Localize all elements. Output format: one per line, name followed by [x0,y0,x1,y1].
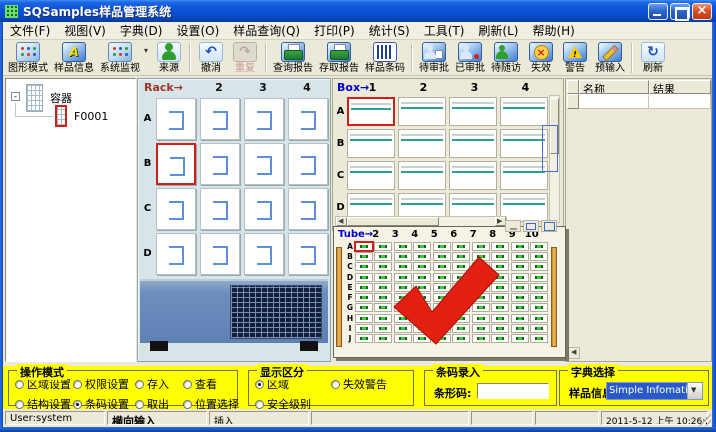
tube-cell-G8[interactable] [491,303,509,312]
rack-cell-D4[interactable] [288,233,328,275]
tube-cell-E2[interactable] [374,283,392,292]
operation-mode-group: 操作模式 区域设置权限设置存入查看结构设置条码设置取出位置选择 [8,370,238,406]
child-maximize-button[interactable] [541,220,557,232]
rack-cell-A4[interactable] [288,98,328,140]
tube-cell-H7[interactable] [472,314,490,323]
tube-cell-E3[interactable] [394,283,412,292]
tube-cell-H10[interactable] [530,314,548,323]
display-mode-option-2[interactable]: 失效警告 [331,376,415,392]
title-bar: SQSamples样品管理系统 [0,0,716,22]
tube-cell-A5[interactable] [433,242,451,251]
toolbar-label: 系统监视 [100,63,140,74]
result-cell-name[interactable] [579,94,649,109]
toolbar-label: 已审批 [455,63,485,74]
tube-cell-A4[interactable] [413,242,431,251]
tube-cell-B1[interactable] [355,252,373,261]
radio-icon [73,380,82,389]
tube-cell-G9[interactable] [511,303,529,312]
restore-icon [524,221,538,231]
tube-cell-G7[interactable] [472,303,490,312]
box-col-header: 3 [449,81,500,94]
tube-cell-J8[interactable] [491,334,509,343]
tube-cell-C3[interactable] [394,262,412,271]
status-bar: User:system 横向输入 插入 2011-5-12 上午 10:26:2… [3,409,712,427]
toolbar-label: 图形模式 [8,63,48,74]
close-button[interactable] [692,3,712,20]
menu-bar: 文件(F)视图(V)字典(D)设置(O)样品查询(Q)打印(P)统计(S)工具(… [3,22,712,40]
system-monitor-button[interactable]: 系统监视 [97,41,143,74]
tube-cell-G6[interactable] [452,303,470,312]
rack-row-label: D [143,248,151,259]
scrollbar-thumb[interactable] [347,217,439,226]
rack-cell-A2[interactable] [200,98,240,140]
tube-cell-C6[interactable] [452,262,470,271]
box-col-header: 1 [347,81,398,94]
doc-followup-icon [494,42,518,62]
selection-indicator-rect [542,125,558,172]
box-row-label: A [337,106,345,117]
toolbar-label: 预输入 [595,63,625,74]
box-cell-A2[interactable] [398,97,446,126]
results-panel: 名称 结果 [565,78,712,362]
tube-cell-J4[interactable] [413,334,431,343]
box-cell-C4[interactable] [500,161,548,190]
rack-col-header: 2 [197,81,241,94]
tube-cell-B8[interactable] [491,252,509,261]
rack-col-header: 3 [241,81,285,94]
rack-cell-C4[interactable] [288,188,328,230]
radio-icon [15,380,24,389]
radio-icon [183,380,192,389]
chevron-down-icon[interactable] [687,383,702,399]
tube-cell-A7[interactable] [472,242,490,251]
resize-grip[interactable] [699,414,711,426]
tube-cell-F5[interactable] [433,293,451,302]
doc-approved-icon [458,42,482,62]
tube-cell-B4[interactable] [413,252,431,261]
box-cell-D4[interactable] [500,193,548,222]
tree-node-container[interactable]: 容器 [50,90,72,106]
box-cell-A3[interactable] [449,97,497,126]
tube-row-label: A [347,242,353,251]
column-header-name[interactable]: 名称 [579,80,649,94]
tray-handle-left [336,247,342,347]
tube-cell-F7[interactable] [472,293,490,302]
box-cell-C2[interactable] [398,161,446,190]
tube-cell-A8[interactable] [491,242,509,251]
tube-cell-D8[interactable] [491,273,509,282]
tube-cell-D2[interactable] [374,273,392,282]
rack-cell-D3[interactable] [244,233,284,275]
dictionary-group: 字典选择 样品信息 Simple Infomation [559,370,709,406]
tube-col-header: 3 [386,229,406,240]
tube-cell-I5[interactable] [433,324,451,333]
tube-cell-E10[interactable] [530,283,548,292]
undo-arrow-icon [199,42,223,62]
tube-cell-I10[interactable] [530,324,548,333]
tube-cell-D3[interactable] [394,273,412,282]
tube-cell-C7[interactable] [472,262,490,271]
tube-cell-E1[interactable] [355,283,373,292]
row-selector[interactable] [567,94,579,109]
tray-handle-right [551,247,557,347]
tree-connector-line [15,116,53,117]
box-cell-B3[interactable] [449,129,497,158]
tube-cell-E6[interactable] [452,283,470,292]
control-strip: 操作模式 区域设置权限设置存入查看结构设置条码设置取出位置选择 显示区分 区域失… [3,366,712,409]
box-row-label: B [337,138,345,149]
tube-row-label: C [347,262,353,271]
rack-title: Rack→ [144,81,183,94]
menu-item[interactable]: 工具(T) [417,21,472,40]
tube-cell-I2[interactable] [374,324,392,333]
pencil-input-button[interactable]: 预输入 [592,41,628,74]
container-tree-panel: 容器 F0001 [5,78,136,362]
printer-query-button[interactable]: 查询报告 [270,41,316,74]
menu-item[interactable]: 设置(O) [169,21,226,40]
tube-cell-I1[interactable] [355,324,373,333]
radio-icon [15,400,24,409]
radio-icon [255,400,264,409]
box-cell-B1[interactable] [347,129,395,158]
doc-pending-icon [422,42,446,62]
barcode-entry-group: 条码录入 条形码: [424,370,557,406]
rack-cell-C3[interactable] [244,188,284,230]
rack-cell-D1[interactable] [156,233,196,275]
box-col-headers: 1234 [347,81,551,94]
toolbar-label: 重复 [235,63,255,74]
window-border [712,22,716,428]
tube-cell-C8[interactable] [491,262,509,271]
tube-cell-A2[interactable] [374,242,392,251]
toolbar-separator [411,43,413,73]
menu-item[interactable]: 字典(D) [113,21,170,40]
result-cell-result[interactable] [649,94,711,109]
maximize-button[interactable] [670,3,690,20]
tube-cell-A10[interactable] [530,242,548,251]
freezer-vent [230,285,322,339]
rack-col-header: 4 [285,81,329,94]
display-mode-group: 显示区分 区域失效警告安全级别 [248,370,414,406]
tube-cell-F2[interactable] [374,293,392,302]
window-border [0,22,3,428]
warning-triangle-button[interactable]: 警告 [558,41,592,74]
menu-item[interactable]: 统计(S) [362,21,417,40]
refresh-circle-button[interactable]: 刷新 [636,41,670,74]
box-cell-B4[interactable] [500,129,548,158]
tube-cell-B10[interactable] [530,252,548,261]
tube-cell-C5[interactable] [433,262,451,271]
menu-item[interactable]: 文件(F) [3,21,57,40]
tube-cell-J6[interactable] [452,334,470,343]
tube-row-label: D [347,273,353,282]
freezer-foot [150,341,168,351]
rack-cell-A3[interactable] [244,98,284,140]
box-panel: Box→ 1234 ABCD [332,78,564,231]
menu-item[interactable]: 刷新(L) [471,21,525,40]
radio-icon [255,380,264,389]
toolbar-label: 刷新 [643,63,663,74]
tube-cell-C9[interactable] [511,262,529,271]
tube-cell-B7[interactable] [472,252,490,261]
tube-cell-H9[interactable] [511,314,529,323]
tube-cell-H4[interactable] [413,314,431,323]
doc-pending-button[interactable]: 待审批 [416,41,452,74]
window-title: SQSamples样品管理系统 [23,3,646,20]
tube-cell-H6[interactable] [452,314,470,323]
tube-col-header: 7 [464,229,484,240]
window-border [0,427,716,432]
refresh-circle-icon [641,42,665,62]
menu-item[interactable]: 帮助(H) [525,21,581,40]
tube-cell-D6[interactable] [452,273,470,282]
tube-row-label: J [349,334,352,343]
tube-cell-F6[interactable] [452,293,470,302]
box-row-label: D [336,202,344,213]
toolbar-label: 警告 [565,63,585,74]
printer-save-icon [327,42,351,62]
sample-info-combobox[interactable]: Simple Infomation [606,382,703,400]
tube-cell-C10[interactable] [530,262,548,271]
barcode-button[interactable]: 样品条码 [362,41,408,74]
tube-cell-F9[interactable] [511,293,529,302]
rack-cell-C1[interactable] [156,188,196,230]
invalid-cross-icon [529,42,553,62]
toolbar-label: 样品条码 [365,63,405,74]
tube-cell-J1[interactable] [355,334,373,343]
status-panel [311,411,469,425]
tree-expander-icon[interactable] [11,92,20,101]
sample-info-icon [62,42,86,62]
group-title: 字典选择 [568,364,618,380]
box-cell-A4[interactable] [500,97,548,126]
tube-col-header: 5 [425,229,445,240]
tube-cell-J2[interactable] [374,334,392,343]
tube-cell-H8[interactable] [491,314,509,323]
box-row-label: C [337,170,344,181]
barcode-input[interactable] [477,383,549,399]
tube-cell-F10[interactable] [530,293,548,302]
tube-cell-B9[interactable] [511,252,529,261]
operation-mode-option-4[interactable]: 查看 [183,376,241,392]
tube-cell-F3[interactable] [394,293,412,302]
toolbar-separator [631,43,633,73]
doc-approved-button[interactable]: 已审批 [452,41,488,74]
radio-label: 存入 [147,376,169,392]
tube-row-label: H [347,314,353,323]
tube-cell-G2[interactable] [374,303,392,312]
printer-save-button[interactable]: 存取报告 [316,41,362,74]
tube-cell-G4[interactable] [413,303,431,312]
tube-cell-D7[interactable] [472,273,490,282]
toolbar-label: 失效 [531,63,551,74]
freezer-rack-icon[interactable] [55,105,67,127]
tube-cell-D5[interactable] [433,273,451,282]
tube-cell-G5[interactable] [433,303,451,312]
operation-mode-option-3[interactable]: 存入 [135,376,183,392]
tube-cell-G1[interactable] [355,303,373,312]
box-cell-A1[interactable] [347,97,395,126]
tube-row-label: B [347,252,353,261]
menu-item[interactable]: 视图(V) [57,21,113,40]
tube-cell-G3[interactable] [394,303,412,312]
app-icon [5,5,18,18]
freezer-body [140,279,328,343]
tube-cell-I6[interactable] [452,324,470,333]
child-restore-button[interactable] [523,220,539,232]
tube-cell-H3[interactable] [394,314,412,323]
tube-cell-D1[interactable] [355,273,373,282]
tube-row-label: E [347,283,352,292]
tube-cell-A1[interactable] [355,242,373,251]
group-title: 条码录入 [433,364,483,380]
group-title: 显示区分 [257,364,307,380]
tube-cell-D10[interactable] [530,273,548,282]
box-cell-B2[interactable] [398,129,446,158]
rack-cell-A1[interactable] [156,98,196,140]
rack-cell-B4[interactable] [288,143,328,185]
box-cell-C3[interactable] [449,161,497,190]
rack-row-label: C [144,203,151,214]
tube-cell-C1[interactable] [355,262,373,271]
tube-cell-F8[interactable] [491,293,509,302]
person-source-button[interactable]: 来源 [152,41,186,74]
redo-icon [233,42,257,62]
grid-mode-icon [16,42,40,62]
tube-cell-J7[interactable] [472,334,490,343]
tube-col-header: 4 [405,229,425,240]
tube-cell-B3[interactable] [394,252,412,261]
tree-node-f0001[interactable]: F0001 [74,110,108,123]
rack-cell-B3[interactable] [244,143,284,185]
status-insert-mode: 插入 [209,411,309,425]
tube-cell-A3[interactable] [394,242,412,251]
tube-row-label: F [347,293,352,302]
rack-grid: ABCD [142,96,329,276]
rack-cell-C2[interactable] [200,188,240,230]
barcode-label: 条形码: [434,385,471,401]
pencil-input-icon [598,42,622,62]
tube-cell-A6[interactable] [452,242,470,251]
sample-info-button[interactable]: 样品信息 [51,41,97,74]
tube-cell-E8[interactable] [491,283,509,292]
radio-icon [331,380,340,389]
tube-cell-I3[interactable] [394,324,412,333]
status-panel [535,411,599,425]
invalid-cross-button[interactable]: 失效 [524,41,558,74]
child-minimize-button[interactable] [505,220,521,232]
minimize-icon [506,221,520,231]
radio-icon [183,400,192,409]
rack-panel: Rack→ 234 ABCD [137,78,331,362]
tube-cell-I8[interactable] [491,324,509,333]
operation-mode-option-2[interactable]: 权限设置 [73,376,135,392]
rack-row-label: B [144,158,152,169]
rack-cell-B2[interactable] [200,143,240,185]
box-grid: ABCD [336,95,549,223]
rack-cell-D2[interactable] [200,233,240,275]
rack-col-headers: 234 [197,81,329,94]
container-rack-icon[interactable] [26,84,43,112]
tube-row-label: I [349,324,352,333]
rack-row-label: A [144,113,152,124]
scroll-left-icon[interactable] [336,217,347,226]
mdi-window-buttons [505,220,557,232]
box-col-header: 4 [500,81,551,94]
minimize-button[interactable] [648,3,668,20]
results-scroll-left-icon[interactable] [568,347,580,359]
tube-cell-J9[interactable] [511,334,529,343]
scrollbar-track[interactable] [439,217,495,226]
box-col-header: 2 [398,81,449,94]
undo-arrow-button[interactable]: 撤消 [194,41,228,74]
tube-cell-H1[interactable] [355,314,373,323]
tube-cell-J10[interactable] [530,334,548,343]
radio-icon [135,380,144,389]
row-selector-header [567,80,579,94]
toolbar-label: 存取报告 [319,63,359,74]
tube-cell-I7[interactable] [472,324,490,333]
tube-cell-I4[interactable] [413,324,431,333]
grid-mode-button[interactable]: 图形模式 [5,41,51,74]
group-title: 操作模式 [17,364,67,380]
tube-cell-B6[interactable] [452,252,470,261]
tube-cell-B5[interactable] [433,252,451,261]
menu-item[interactable]: 样品查询(Q) [226,21,307,40]
status-datetime: 2011-5-12 上午 10:26:26 [601,411,708,425]
tree-connector-line [15,103,16,116]
toolbar-label: 撤消 [201,63,221,74]
tube-cell-H5[interactable] [433,314,451,323]
tube-cell-E4[interactable] [413,283,431,292]
tube-cell-E9[interactable] [511,283,529,292]
tube-col-header: 6 [444,229,464,240]
tube-cell-C4[interactable] [413,262,431,271]
doc-followup-button[interactable]: 待随访 [488,41,524,74]
tube-cell-I9[interactable] [511,324,529,333]
tube-cell-H2[interactable] [374,314,392,323]
toolbar-label: 待随访 [491,63,521,74]
tube-cell-F1[interactable] [355,293,373,302]
box-cell-C1[interactable] [347,161,395,190]
tube-cell-E7[interactable] [472,283,490,292]
system-monitor-dropdown-icon[interactable] [143,44,152,64]
radio-label: 查看 [195,376,217,392]
tube-cell-B2[interactable] [374,252,392,261]
tube-cell-C2[interactable] [374,262,392,271]
tube-col-header: 8 [483,229,503,240]
app-window: SQSamples样品管理系统 文件(F)视图(V)字典(D)设置(O)样品查询… [0,0,716,432]
menu-item[interactable]: 打印(P) [307,21,362,40]
tube-cell-A9[interactable] [511,242,529,251]
toolbar-separator [189,43,191,73]
freezer-foot [300,341,318,351]
radio-icon [135,400,144,409]
tube-cell-D9[interactable] [511,273,529,282]
tube-cell-J3[interactable] [394,334,412,343]
tube-cell-J5[interactable] [433,334,451,343]
box-header: Box→ 1234 [335,81,561,94]
tube-col-header: 2 [366,229,386,240]
status-panel [471,411,533,425]
tube-cell-E5[interactable] [433,283,451,292]
rack-cell-B1[interactable] [156,143,196,185]
tube-cell-D4[interactable] [413,273,431,282]
tube-grid: ABCDEFGHIJ [346,241,549,344]
tube-cell-F4[interactable] [413,293,431,302]
column-header-result[interactable]: 结果 [649,80,711,94]
tube-cell-G10[interactable] [530,303,548,312]
